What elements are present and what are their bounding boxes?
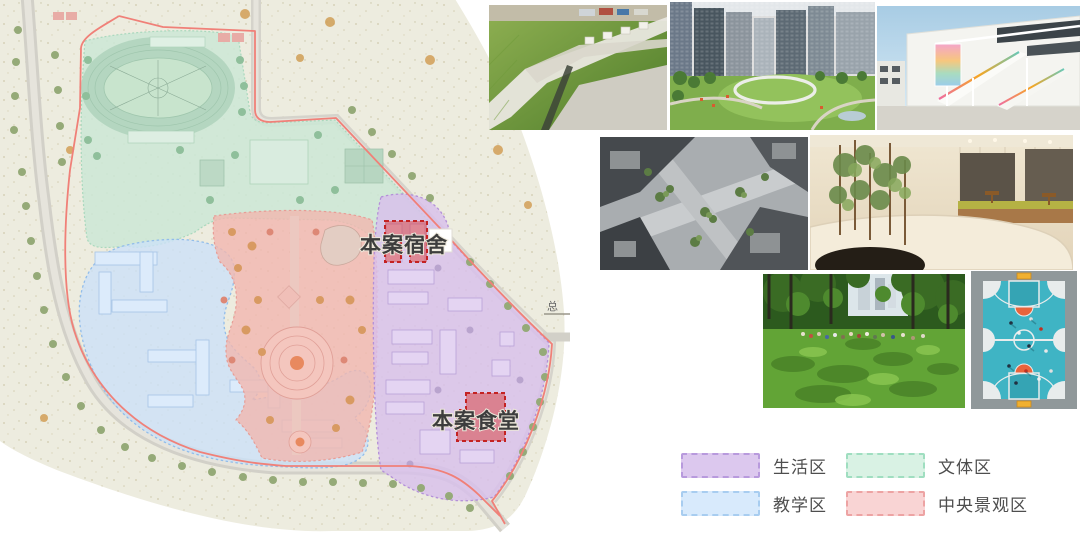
legend-swatch-teaching xyxy=(681,491,760,516)
canteen-label: 本案食堂 xyxy=(432,409,520,433)
legend-label-living: 生活区 xyxy=(773,453,846,478)
presentation-slide: 本案宿舍 本案食堂 总 xyxy=(0,0,1080,533)
legend-swatch-living xyxy=(681,453,760,478)
legend-label-central-landscape: 中央景观区 xyxy=(938,491,1028,516)
legend-label-teaching: 教学区 xyxy=(773,491,846,516)
site-plan-map: 本案宿舍 本案食堂 总 xyxy=(0,0,570,533)
photo-city-park-ring xyxy=(670,2,875,130)
legend-row-2: 教学区 中央景观区 xyxy=(681,491,1028,516)
legend: 生活区 文体区 教学区 中央景观区 xyxy=(681,453,1028,529)
photo-school-rainbow-stairs xyxy=(877,6,1080,130)
legend-label-sports-culture: 文体区 xyxy=(938,453,992,478)
photo-basketball-court xyxy=(971,271,1077,409)
legend-swatch-central-landscape xyxy=(846,491,925,516)
photo-courtyard-aerial xyxy=(600,137,808,270)
photo-warm-interior xyxy=(810,135,1073,270)
corner-mark-label: 总 xyxy=(547,299,558,313)
photo-park-lawn xyxy=(763,274,965,408)
dormitory-label: 本案宿舍 xyxy=(360,233,448,257)
legend-swatch-sports-culture xyxy=(846,453,925,478)
photo-green-roof-aerial xyxy=(489,5,667,130)
legend-row-1: 生活区 文体区 xyxy=(681,453,1028,478)
